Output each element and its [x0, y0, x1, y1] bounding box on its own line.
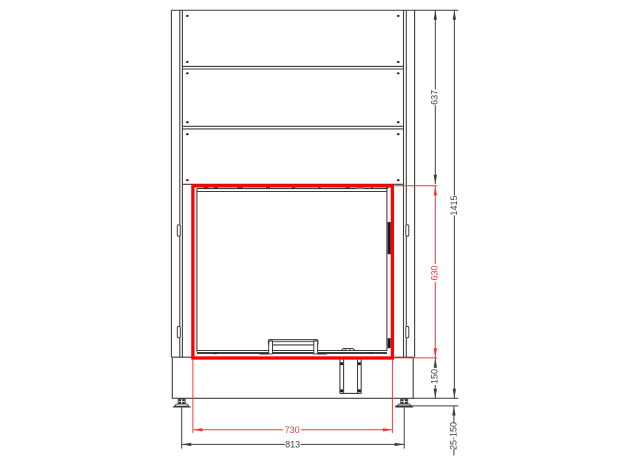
svg-text:637: 637	[429, 90, 439, 105]
svg-text:150: 150	[430, 369, 440, 384]
svg-text:25-150: 25-150	[449, 422, 459, 450]
svg-text:630: 630	[429, 265, 439, 280]
svg-text:730: 730	[285, 425, 300, 435]
svg-text:1415: 1415	[449, 195, 459, 215]
svg-text:813: 813	[285, 439, 300, 449]
